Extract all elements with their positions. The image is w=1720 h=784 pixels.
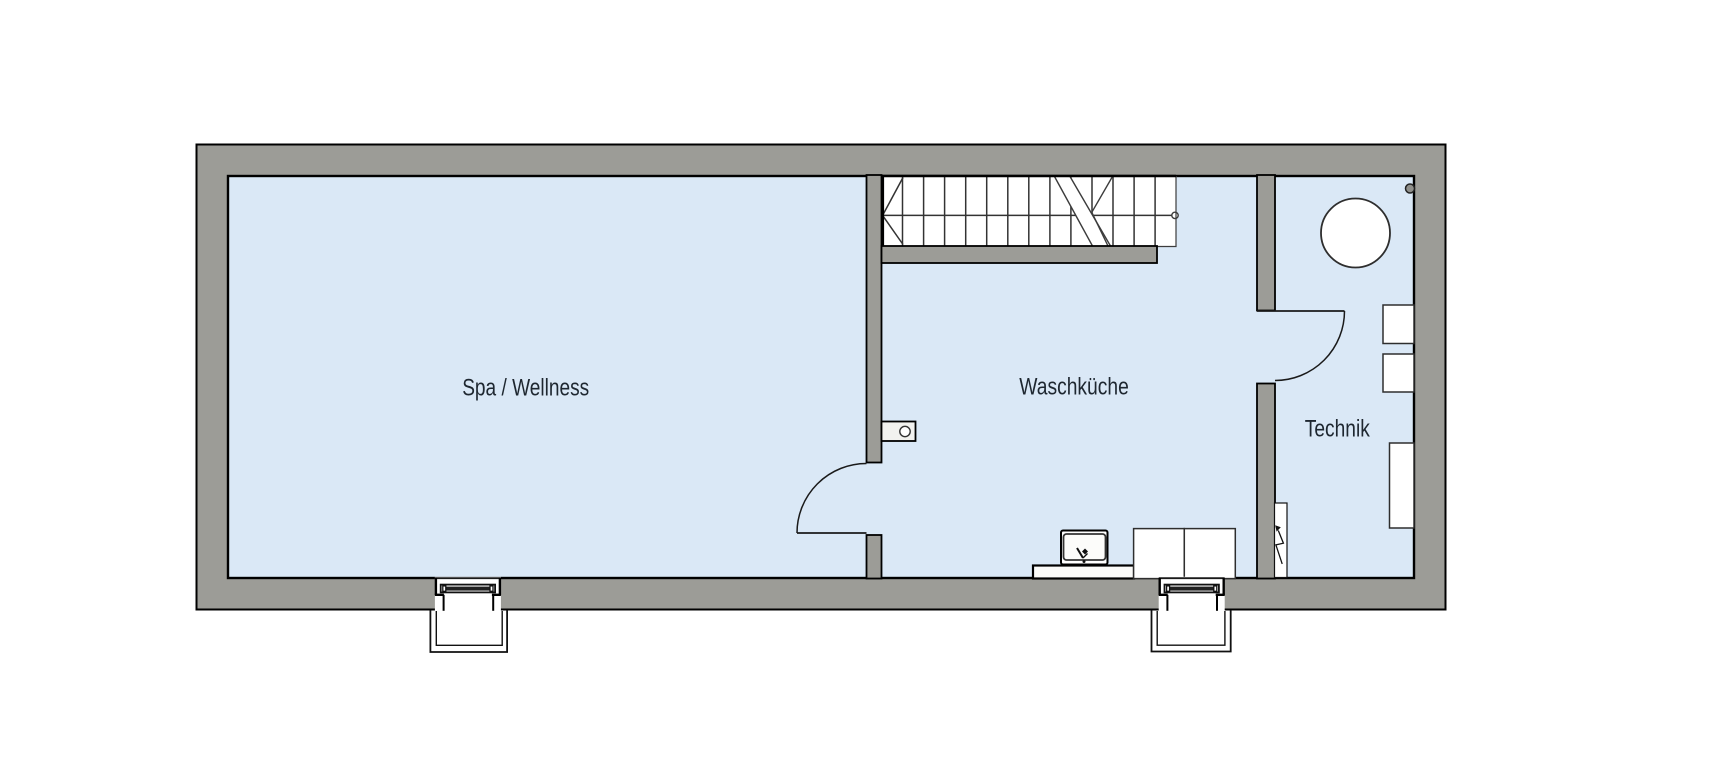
- svg-text:Waschküche: Waschküche: [1019, 373, 1129, 400]
- svg-text:Technik: Technik: [1305, 415, 1371, 442]
- svg-text:Spa / Wellness: Spa / Wellness: [462, 375, 589, 402]
